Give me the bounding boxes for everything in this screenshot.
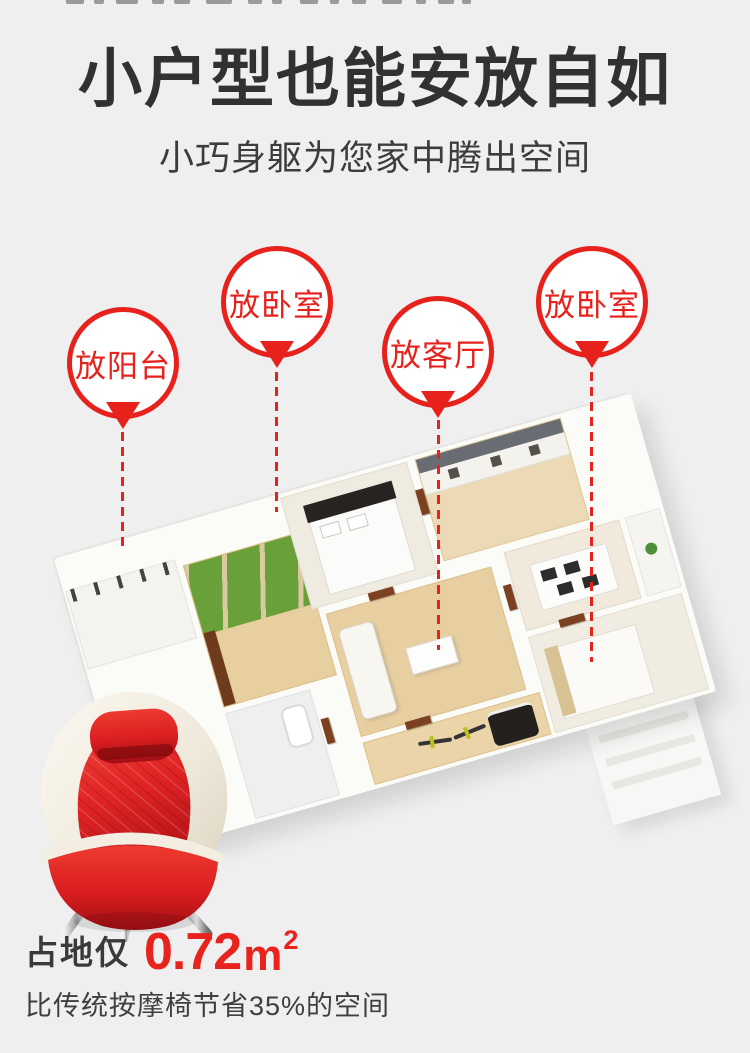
pin-tail-icon — [421, 391, 455, 418]
room-balcony-corridor — [65, 559, 197, 669]
placemat — [540, 567, 557, 582]
bathtub — [279, 702, 316, 750]
balcony-railing — [70, 561, 174, 602]
pin-label: 放卧室 — [544, 280, 640, 325]
porch-step — [612, 757, 703, 790]
remnant-mark — [438, 0, 454, 4]
leader-line-living — [437, 420, 440, 650]
pin-tail-icon — [260, 341, 294, 368]
pin-bedroom-left: 放卧室 — [221, 246, 333, 358]
remnant-mark — [352, 0, 366, 4]
pin-bedroom-right: 放卧室 — [536, 246, 648, 358]
pillow — [346, 513, 369, 531]
coffee-table — [405, 635, 459, 675]
remnant-mark — [116, 0, 138, 4]
placemat — [563, 560, 580, 575]
pin-living: 放客厅 — [382, 296, 494, 408]
remnant-mark — [462, 0, 471, 4]
pin-label: 放卧室 — [229, 280, 325, 325]
pin-tail-icon — [575, 341, 609, 368]
pin-balcony: 放阳台 — [67, 307, 179, 419]
massage-chair-image — [18, 684, 256, 944]
remnant-mark — [382, 0, 402, 4]
remnant-mark — [152, 0, 164, 4]
potted-plant — [644, 541, 659, 556]
bicycle — [453, 724, 486, 740]
dining-table — [529, 543, 619, 611]
massage-chair-svg — [18, 684, 256, 944]
remnant-mark — [272, 0, 282, 4]
placemat — [557, 581, 574, 596]
footprint-unit-exponent: 2 — [283, 925, 298, 956]
pillow — [319, 521, 342, 539]
bed-dark-frame — [304, 482, 416, 595]
bed-white — [545, 624, 655, 719]
page-subtitle: 小巧身躯为您家中腾出空间 — [0, 130, 750, 181]
pin-label: 放客厅 — [390, 330, 486, 375]
leader-line-bedroom-right — [590, 372, 593, 662]
footprint-prefix: 占地仅 — [25, 926, 130, 978]
bicycle — [418, 737, 452, 746]
footprint-block: 占地仅 0.72 m 2 比传统按摩椅节省35%的空间 — [25, 926, 390, 1023]
remnant-mark — [174, 0, 190, 4]
remnant-mark — [206, 0, 232, 4]
pin-tail-icon — [106, 402, 140, 429]
bed-headboard — [544, 645, 577, 716]
remnant-mark — [248, 0, 262, 4]
leader-line-bedroom-left — [275, 372, 278, 512]
entry-black-chair — [486, 701, 540, 747]
page-title: 小户型也能安放自如 — [0, 44, 750, 114]
chair-headrest — [88, 707, 179, 765]
footprint-note: 比传统按摩椅节省35%的空间 — [25, 984, 390, 1023]
remnant-mark — [66, 0, 84, 4]
sofa — [338, 620, 399, 720]
remnant-mark — [416, 0, 426, 4]
footprint-value: 0.72 — [144, 926, 241, 978]
footprint-unit: m — [243, 934, 282, 978]
footprint-line: 占地仅 0.72 m 2 — [25, 926, 390, 978]
remnant-mark — [94, 0, 104, 4]
leader-line-balcony — [121, 432, 124, 552]
pin-label: 放阳台 — [75, 341, 171, 386]
remnant-mark — [330, 0, 339, 4]
remnant-mark — [300, 0, 318, 4]
